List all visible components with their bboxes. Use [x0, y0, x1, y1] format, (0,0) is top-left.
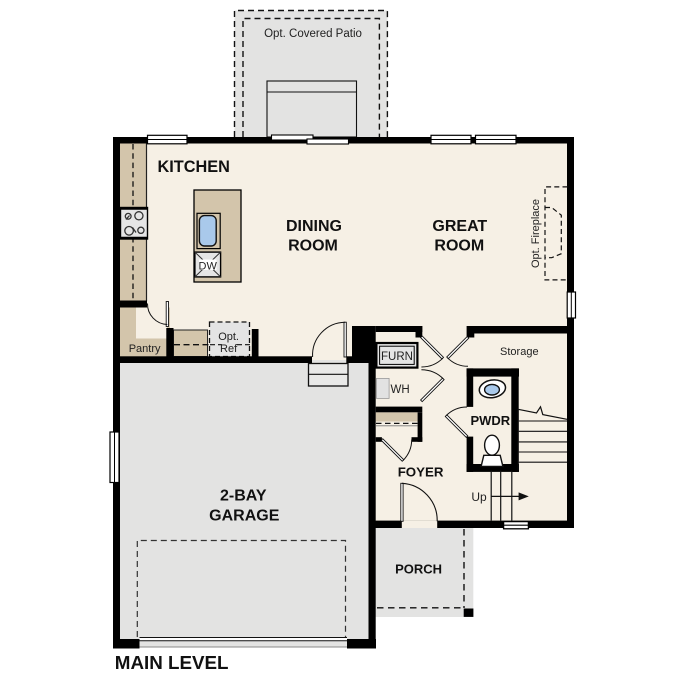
svg-text:KITCHEN: KITCHEN	[158, 158, 230, 176]
svg-text:DW: DW	[199, 261, 218, 273]
svg-text:Pantry: Pantry	[129, 343, 161, 355]
svg-text:Up: Up	[471, 490, 487, 504]
svg-text:2-BAY: 2-BAY	[220, 487, 267, 504]
svg-text:WH: WH	[391, 384, 410, 396]
svg-text:ROOM: ROOM	[288, 237, 338, 254]
svg-text:Opt. Covered Patio: Opt. Covered Patio	[264, 28, 362, 40]
svg-text:Storage: Storage	[500, 346, 539, 358]
svg-text:MAIN LEVEL: MAIN LEVEL	[115, 652, 229, 673]
svg-text:Opt.: Opt.	[218, 331, 239, 343]
svg-text:PWDR: PWDR	[470, 413, 510, 428]
svg-text:DINING: DINING	[286, 218, 342, 235]
svg-text:ROOM: ROOM	[434, 237, 484, 254]
svg-text:PORCH: PORCH	[395, 561, 442, 576]
svg-text:GREAT: GREAT	[432, 218, 487, 235]
svg-text:Ref: Ref	[220, 343, 238, 355]
svg-text:Opt. Fireplace: Opt. Fireplace	[530, 199, 542, 268]
svg-text:FURN: FURN	[381, 351, 413, 363]
svg-text:GARAGE: GARAGE	[209, 508, 280, 525]
svg-text:FOYER: FOYER	[398, 465, 444, 480]
